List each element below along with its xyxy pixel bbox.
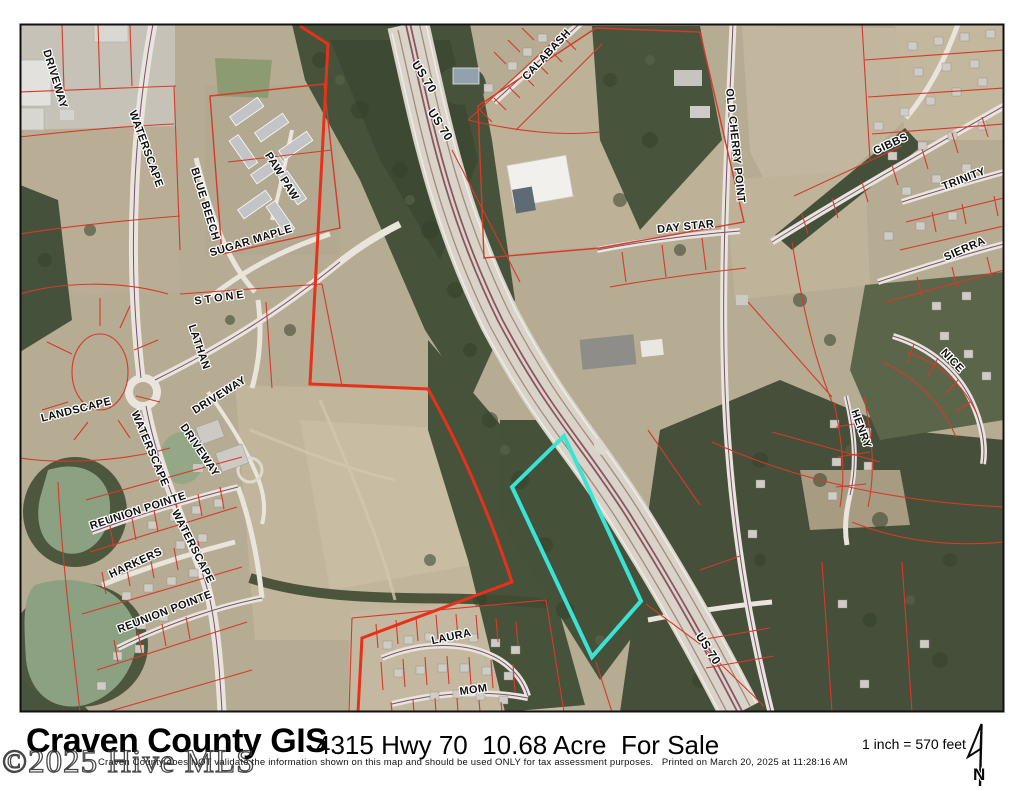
map-canvas: DRIVEWAYWATERSCAPEBLUE BEECHPAW PAWSUGAR… [0,0,1024,791]
mls-watermark: ©2025 Hive MLS [2,744,256,781]
north-label: N [973,765,985,784]
north-arrow-icon: N [956,716,1006,790]
scale-text: 1 inch = 570 feet [862,736,966,752]
gis-map-printout: DRIVEWAYWATERSCAPEBLUE BEECHPAW PAWSUGAR… [0,0,1024,791]
aerial-imagery: DRIVEWAYWATERSCAPEBLUE BEECHPAW PAWSUGAR… [0,15,1004,721]
